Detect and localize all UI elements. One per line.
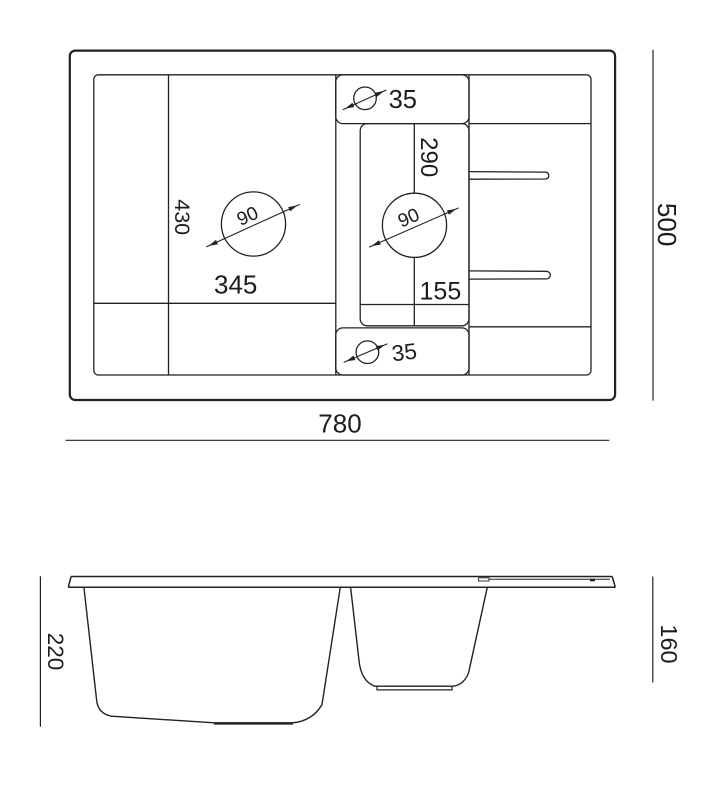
svg-text:155: 155 — [420, 277, 462, 305]
svg-text:160: 160 — [656, 624, 682, 663]
svg-text:345: 345 — [214, 269, 257, 299]
svg-text:780: 780 — [318, 409, 361, 439]
svg-text:430: 430 — [170, 199, 194, 235]
svg-text:220: 220 — [43, 633, 68, 671]
svg-text:35: 35 — [390, 338, 418, 366]
svg-text:35: 35 — [389, 86, 417, 114]
svg-text:90: 90 — [395, 205, 423, 233]
svg-text:90: 90 — [234, 203, 262, 231]
svg-text:290: 290 — [415, 137, 442, 177]
svg-text:500: 500 — [652, 203, 682, 246]
